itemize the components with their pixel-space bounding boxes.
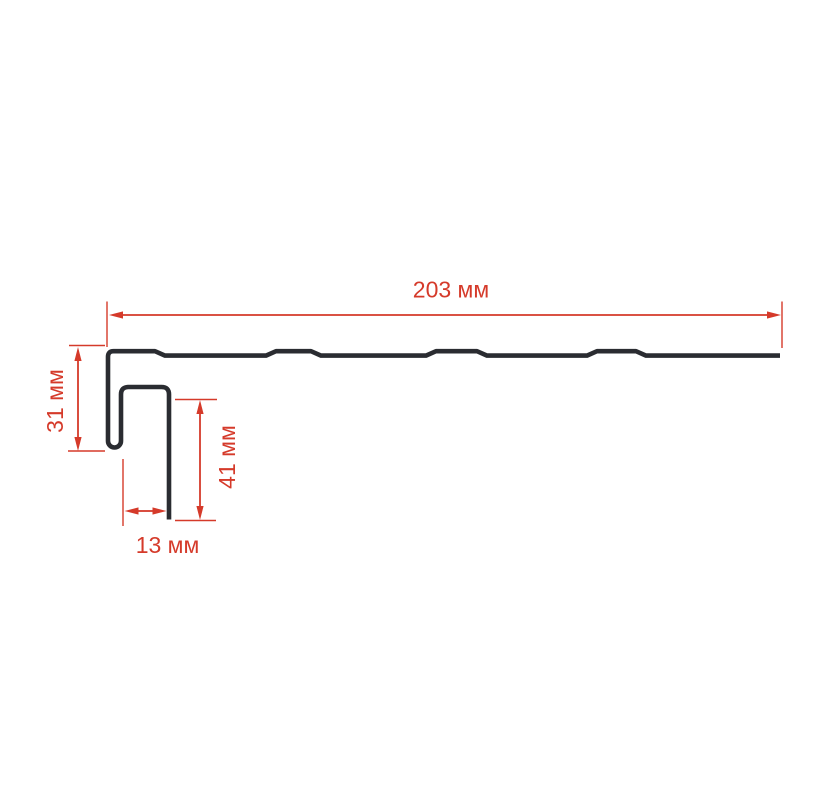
dimension-top-width: 203 мм (107, 277, 782, 349)
dimension-label-channel-width: 13 мм (136, 532, 200, 558)
dimension-hook-depth: 41 мм (175, 400, 240, 521)
arrowhead-right-icon (153, 507, 167, 514)
profile-outline (108, 351, 780, 519)
arrowhead-down-icon (196, 506, 203, 520)
arrowhead-right-icon (767, 311, 781, 318)
dimension-label-left-height: 31 мм (42, 369, 68, 433)
dimension-label-hook-depth: 41 мм (214, 425, 240, 489)
drawing-canvas: 203 мм 31 мм 41 мм 13 мм (0, 0, 839, 810)
arrowhead-left-icon (125, 507, 139, 514)
arrowhead-up-icon (74, 347, 81, 361)
dimension-label-top-width: 203 мм (413, 277, 489, 303)
arrowhead-left-icon (109, 311, 123, 318)
profile-drawing: 203 мм 31 мм 41 мм 13 мм (0, 0, 839, 810)
dimension-left-height: 31 мм (42, 346, 105, 452)
arrowhead-down-icon (74, 437, 81, 451)
dimension-channel-width: 13 мм (123, 459, 199, 558)
arrowhead-up-icon (196, 400, 203, 414)
